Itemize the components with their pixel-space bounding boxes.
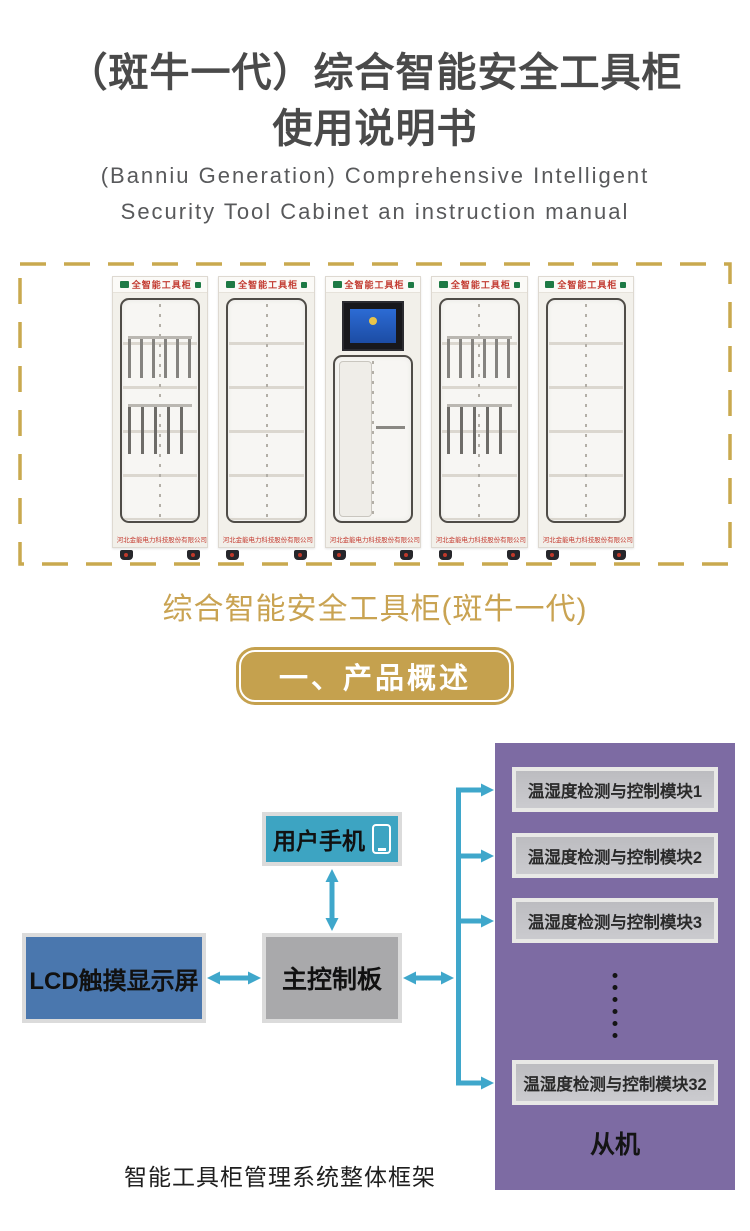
module-box-2: 温湿度检测与控制模块2 [512, 833, 718, 878]
caster-wheel [400, 550, 413, 560]
section-banner: 一、产品概述 [239, 650, 511, 702]
tool-rack [447, 404, 511, 454]
tool-rack [447, 336, 511, 378]
page-subtitle-line1: (Banniu Generation) Comprehensive Intell… [0, 163, 750, 189]
caster-wheel [187, 550, 200, 560]
company-label: 河北金能电力科技股份有限公司 [330, 535, 417, 544]
user-phone-label: 用户手机 [273, 822, 365, 856]
caster-wheel [613, 550, 626, 560]
controller-label: 主控制板 [282, 960, 382, 996]
caster-wheel [333, 550, 346, 560]
cabinet-door [226, 298, 306, 523]
cabinet-tools-2: 全智能工具柜 河北金能电力科技股份有限公司 [431, 276, 527, 560]
grid-logo-icon [301, 282, 307, 288]
lcd-label: LCD触摸显示屏 [29, 961, 198, 996]
grid-logo-icon [333, 281, 342, 288]
grid-logo-icon [439, 281, 448, 288]
cabinet-row: 全智能工具柜 河北金能电力科技股份有限公司 [112, 276, 634, 560]
cabinet-door [439, 298, 519, 523]
cabinet-body: 全智能工具柜 河北金能电力科技股份有限公司 [218, 276, 314, 548]
diagram-slave-panel: 温湿度检测与控制模块1 温湿度检测与控制模块2 温湿度检测与控制模块3 温湿度检… [495, 743, 735, 1190]
cabinet-door [546, 298, 626, 523]
mirror-pane [339, 361, 373, 517]
slave-label: 从机 [495, 1125, 735, 1161]
cabinet-header: 全智能工具柜 [432, 277, 526, 293]
diagram-lcd-box: LCD触摸显示屏 [22, 933, 206, 1023]
cabinet-body: 全智能工具柜 河北金能电力科技股份有限公司 [325, 276, 421, 548]
cabinet-door [333, 355, 413, 523]
diagram-user-phone-box: 用户手机 [262, 812, 402, 866]
manual-page: （斑牛一代）综合智能安全工具柜 使用说明书 (Banniu Generation… [0, 0, 750, 1231]
photo-caption: 综合智能安全工具柜(斑牛一代) [0, 584, 750, 628]
caster-wheel [546, 550, 559, 560]
grid-logo-icon [195, 282, 201, 288]
company-label: 河北金能电力科技股份有限公司 [117, 535, 204, 544]
caster-wheel [226, 550, 239, 560]
cabinet-header-label: 全智能工具柜 [132, 278, 192, 291]
shelf-spine [266, 304, 268, 517]
grid-logo-icon [514, 282, 520, 288]
module-box-3: 温湿度检测与控制模块3 [512, 898, 718, 943]
caster-wheel [507, 550, 520, 560]
product-photo: 全智能工具柜 河北金能电力科技股份有限公司 [18, 262, 732, 566]
hanger-bar [376, 426, 405, 429]
diagram-caption: 智能工具柜管理系统整体框架 [124, 1158, 436, 1192]
cabinet-header-label: 全智能工具柜 [238, 278, 298, 291]
tool-rack [128, 404, 192, 454]
module-box-32: 温湿度检测与控制模块32 [512, 1060, 718, 1105]
grid-logo-icon [545, 281, 554, 288]
page-title-line2: 使用说明书 [0, 96, 750, 154]
cabinet-tools-1: 全智能工具柜 河北金能电力科技股份有限公司 [112, 276, 208, 560]
shelf-spine [585, 304, 587, 517]
cabinet-body: 全智能工具柜 河北金能电力科技股份有限公司 [431, 276, 527, 548]
page-subtitle-line2: Security Tool Cabinet an instruction man… [0, 199, 750, 225]
grid-logo-icon [408, 282, 414, 288]
cabinet-header-label: 全智能工具柜 [451, 278, 511, 291]
section-banner-label: 一、产品概述 [279, 655, 471, 697]
cabinet-screen: 全智能工具柜 河北金能电力科技股份有限公司 [325, 276, 421, 560]
cabinet-body: 全智能工具柜 河北金能电力科技股份有限公司 [112, 276, 208, 548]
grid-logo-icon [226, 281, 235, 288]
company-label: 河北金能电力科技股份有限公司 [542, 535, 629, 544]
touchscreen [344, 303, 402, 349]
phone-icon [372, 824, 391, 854]
cabinet-header: 全智能工具柜 [326, 277, 420, 293]
company-label: 河北金能电力科技股份有限公司 [223, 535, 310, 544]
shelf-spine [372, 361, 374, 517]
page-title-line1: （斑牛一代）综合智能安全工具柜 [0, 40, 750, 98]
cabinet-empty-1: 全智能工具柜 河北金能电力科技股份有限公司 [218, 276, 314, 560]
caster-wheel [439, 550, 452, 560]
diagram-controller-box: 主控制板 [262, 933, 402, 1023]
caster-wheel [120, 550, 133, 560]
cabinet-header: 全智能工具柜 [219, 277, 313, 293]
touchscreen-display [350, 309, 396, 343]
cabinet-door [120, 298, 200, 523]
caster-wheel [294, 550, 307, 560]
grid-logo-icon [120, 281, 129, 288]
cabinet-header: 全智能工具柜 [539, 277, 633, 293]
ellipsis-dots [613, 973, 618, 1038]
module-box-1: 温湿度检测与控制模块1 [512, 767, 718, 812]
cabinet-body: 全智能工具柜 河北金能电力科技股份有限公司 [538, 276, 634, 548]
tool-rack [128, 336, 192, 378]
grid-logo-icon [620, 282, 626, 288]
cabinet-header: 全智能工具柜 [113, 277, 207, 293]
cabinet-header-label: 全智能工具柜 [345, 278, 405, 291]
company-label: 河北金能电力科技股份有限公司 [436, 535, 523, 544]
cabinet-header-label: 全智能工具柜 [557, 278, 617, 291]
cabinet-empty-2: 全智能工具柜 河北金能电力科技股份有限公司 [538, 276, 634, 560]
